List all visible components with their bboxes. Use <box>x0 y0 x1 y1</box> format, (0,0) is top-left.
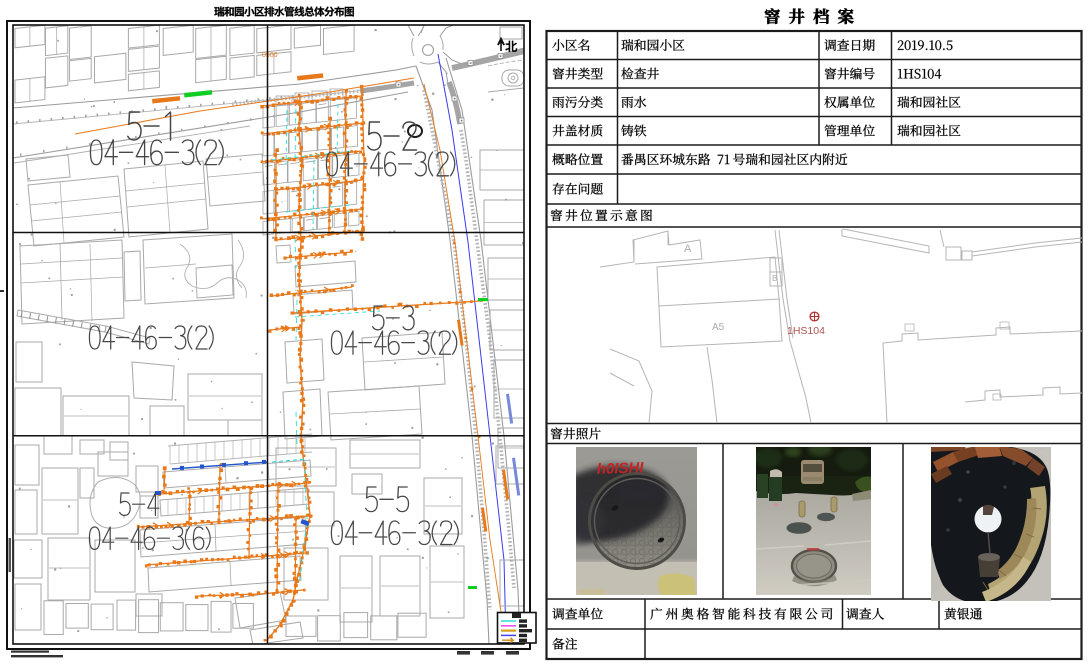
svg-text:A5: A5 <box>712 322 725 333</box>
svg-text:B: B <box>772 274 777 283</box>
svg-text:A: A <box>684 243 692 255</box>
svg-text:h0ISHI: h0ISHI <box>597 459 645 478</box>
svg-text:0500: 0500 <box>262 52 278 59</box>
svg-text:1HS104: 1HS104 <box>787 325 825 337</box>
